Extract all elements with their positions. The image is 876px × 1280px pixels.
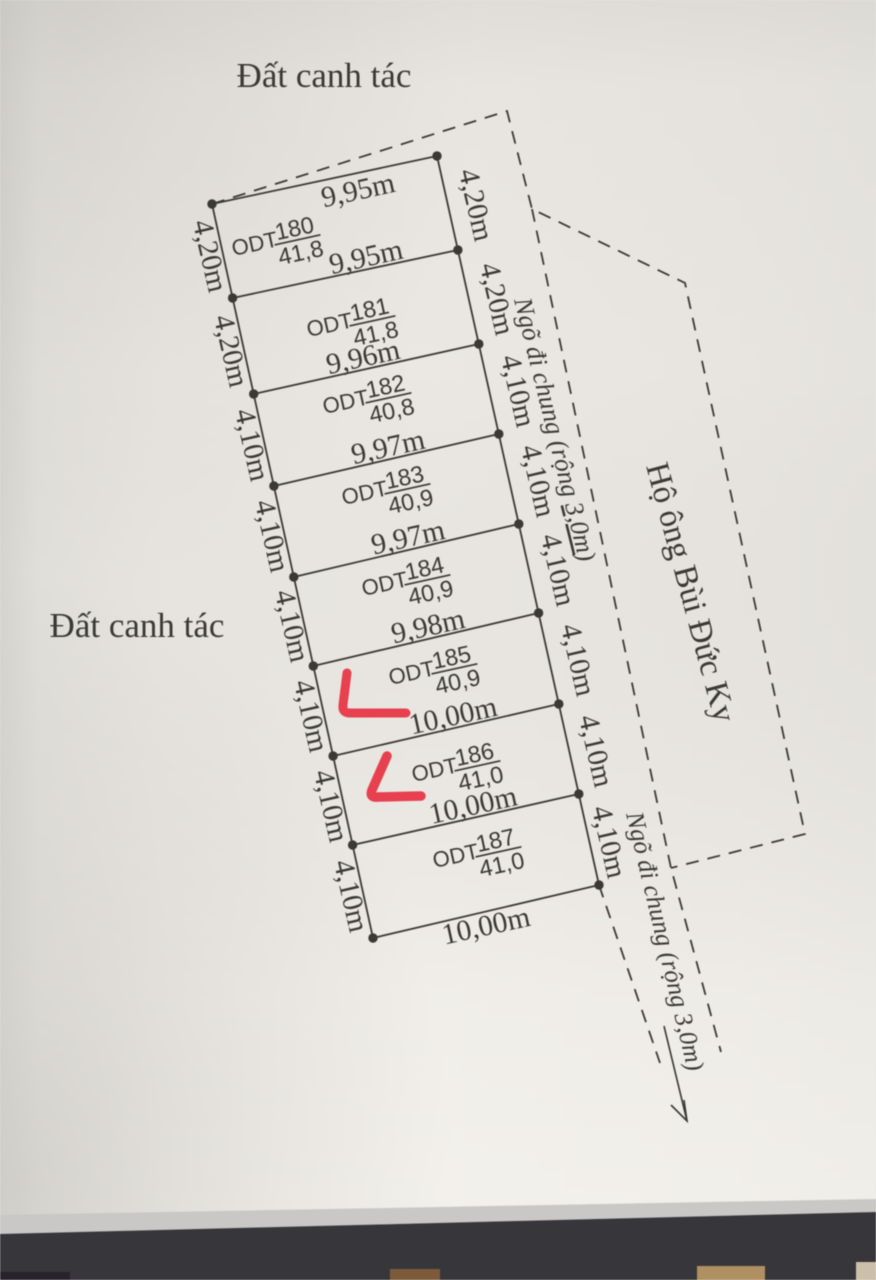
svg-text:Đất canh tác: Đất canh tác: [237, 56, 412, 95]
svg-text:Đất canh tác: Đất canh tác: [50, 606, 225, 645]
